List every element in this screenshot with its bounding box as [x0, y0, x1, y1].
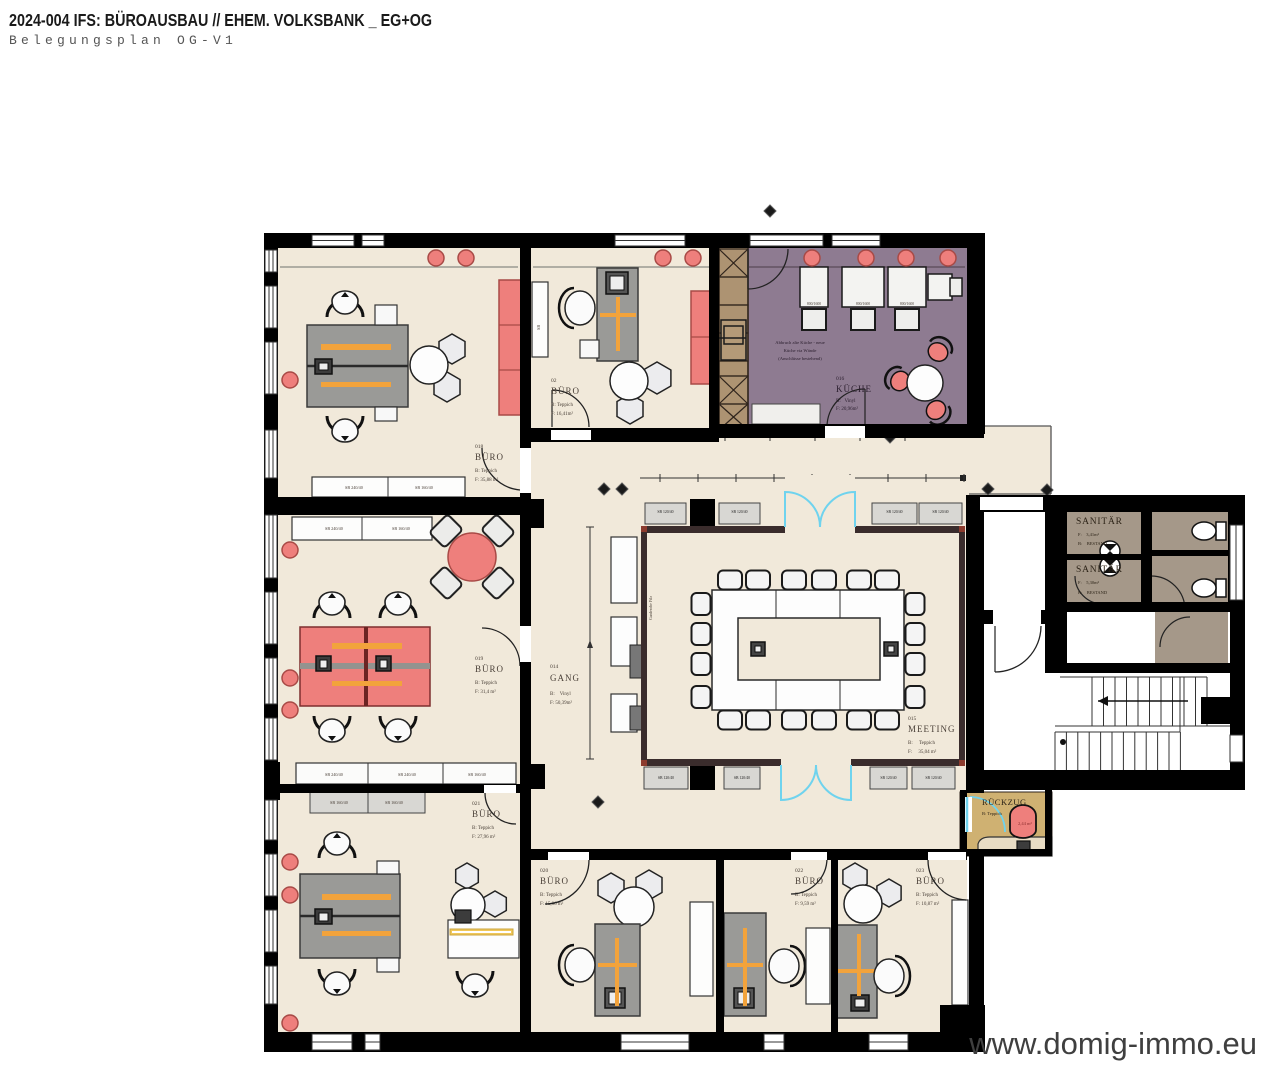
svg-text:MEETING: MEETING: [908, 724, 956, 734]
svg-text:SB 120/40: SB 120/40: [880, 776, 896, 780]
svg-text:B: Teppich: B: Teppich: [982, 811, 1002, 816]
svg-text:B: Teppich: B: Teppich: [475, 681, 498, 686]
svg-text:800/1600: 800/1600: [856, 302, 870, 306]
svg-text:B: Vinyl: B: Vinyl: [836, 399, 856, 404]
svg-text:BÜRO: BÜRO: [916, 876, 945, 886]
svg-text:02: 02: [551, 378, 557, 384]
svg-text:F: 50,39m²: F: 50,39m²: [550, 700, 573, 706]
svg-text:SB 160/40: SB 160/40: [392, 526, 410, 531]
svg-text:(Anschlüsse bestehend): (Anschlüsse bestehend): [778, 356, 822, 361]
svg-text:SB 240/40: SB 240/40: [398, 772, 416, 777]
svg-text:SB 120/40: SB 120/40: [925, 776, 941, 780]
svg-text:F: 9,59 m²: F: 9,59 m²: [795, 901, 816, 907]
svg-text:B: Teppich: B: Teppich: [916, 893, 939, 898]
svg-text:B: BESTAND: B: BESTAND: [1078, 590, 1108, 595]
svg-text:F: 31,4 m²: F: 31,4 m²: [475, 689, 496, 695]
svg-text:800/1600: 800/1600: [807, 302, 821, 306]
svg-text:SB 120/40: SB 120/40: [658, 776, 674, 780]
svg-text:SB 240/40: SB 240/40: [345, 485, 363, 490]
svg-text:B: Teppich: B: Teppich: [540, 893, 563, 898]
svg-text:BÜRO: BÜRO: [475, 664, 504, 674]
svg-text:BÜRO: BÜRO: [475, 452, 504, 462]
svg-text:KÜCHE: KÜCHE: [836, 384, 872, 394]
svg-text:F: 27,96 m²: F: 27,96 m²: [472, 834, 496, 840]
svg-text:SANITÄR: SANITÄR: [1076, 515, 1123, 527]
svg-text:SB 240/40: SB 240/40: [325, 526, 343, 531]
svg-text:BÜRO: BÜRO: [795, 876, 824, 886]
svg-text:016: 016: [836, 376, 845, 382]
svg-text:BÜRO: BÜRO: [472, 809, 501, 819]
svg-text:SB 120/40: SB 120/40: [886, 510, 902, 514]
svg-text:F: 35,04 m²: F: 35,04 m²: [908, 749, 937, 755]
svg-text:F: 20,96m²: F: 20,96m²: [836, 406, 859, 412]
svg-text:GANG: GANG: [550, 673, 580, 683]
svg-text:020: 020: [540, 868, 549, 874]
svg-text:B: Vinyl: B: Vinyl: [550, 692, 571, 697]
svg-text:SB 160/40: SB 160/40: [415, 485, 433, 490]
svg-text:018: 018: [475, 444, 484, 450]
svg-text:RÜCKZUG: RÜCKZUG: [982, 797, 1027, 807]
svg-text:B: Teppich: B: Teppich: [551, 403, 574, 408]
svg-text:BÜRO: BÜRO: [540, 876, 569, 886]
svg-text:F: 16,41m²: F: 16,41m²: [551, 411, 574, 417]
svg-text:B: BESTAND: B: BESTAND: [1078, 541, 1108, 546]
svg-text:B: Teppich: B: Teppich: [475, 469, 498, 474]
svg-text:023: 023: [916, 868, 925, 874]
svg-text:Abbruch alte Küche - neue: Abbruch alte Küche - neue: [775, 340, 825, 345]
svg-text:015: 015: [908, 716, 917, 722]
svg-text:014: 014: [550, 664, 559, 670]
svg-text:F: 35,88 m²: F: 35,88 m²: [475, 477, 499, 483]
svg-text:Garderobe Filz: Garderobe Filz: [648, 596, 653, 620]
svg-text:B: Teppich: B: Teppich: [908, 741, 936, 746]
svg-text:019: 019: [475, 656, 484, 662]
svg-text:021: 021: [472, 801, 481, 807]
svg-text:BÜRO: BÜRO: [551, 386, 580, 396]
svg-text:SB 120/40: SB 120/40: [657, 510, 673, 514]
svg-text:022: 022: [795, 868, 804, 874]
svg-text:SB: SB: [536, 325, 541, 330]
svg-text:SB 160/40: SB 160/40: [468, 772, 486, 777]
svg-text:Küche via Wände: Küche via Wände: [784, 348, 817, 353]
svg-text:B: Teppich: B: Teppich: [472, 826, 495, 831]
svg-text:F: 10,87 m²: F: 10,87 m²: [916, 901, 940, 907]
svg-text:SB 240/40: SB 240/40: [325, 772, 343, 777]
svg-text:SB 160/40: SB 160/40: [385, 800, 403, 805]
svg-text:SB 120/40: SB 120/40: [731, 510, 747, 514]
svg-text:SANITÄR: SANITÄR: [1076, 563, 1123, 575]
svg-text:SB 120/40: SB 120/40: [932, 510, 948, 514]
svg-text:SB 160/40: SB 160/40: [330, 800, 348, 805]
svg-text:SB 120/40: SB 120/40: [734, 776, 750, 780]
svg-text:800/1600: 800/1600: [900, 302, 914, 306]
